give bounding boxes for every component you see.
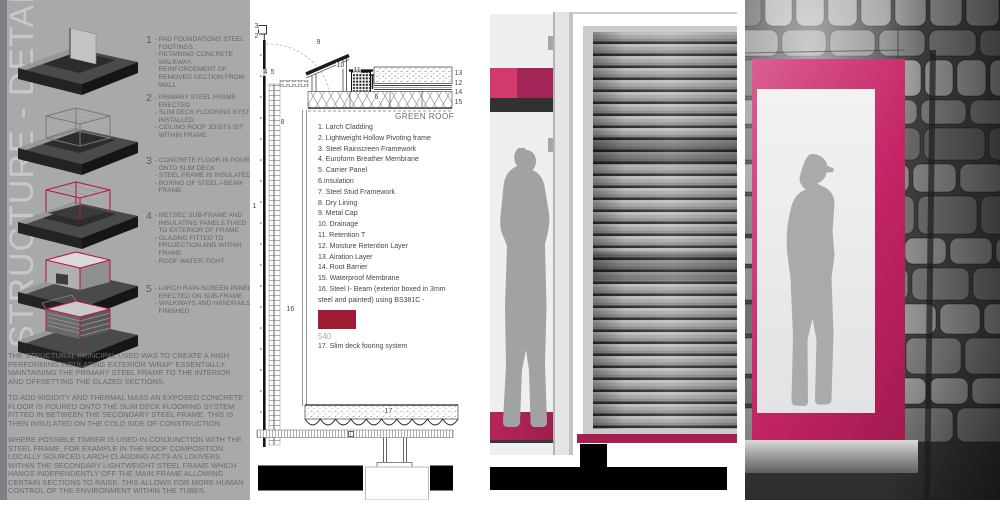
step-annotation-2: 2 - PRIMARY STEEL FRAME ERECTED - SLIM D… [146,94,248,140]
concrete-pier [366,467,429,500]
legend-item: 2. Lightweight Hollow Pivoting frame [318,134,454,145]
step-text: - PAD FOUNDATIONS STEEL FOOTINGS. - RETA… [155,36,244,89]
step-number: 2 [146,94,152,140]
dry-lining [303,110,307,406]
step-annotation-3: 3 - CONCRETE FLOOR IS POURED ONTO SLIM D… [146,157,248,195]
green-roof-substrate [374,67,452,84]
callout-label: 4 [263,69,268,76]
bracket-tab [548,36,553,50]
step-number: 3 [146,157,152,195]
detail-drawing-panel: GREEN ROOF 1. Larch Cladding2. Lightweig… [250,0,487,500]
callout-label: 16 [286,306,295,313]
legend-item: 7. Steel Stud Framework [318,188,454,199]
axon-step-1-image [12,20,144,96]
legend-item: 15. Waterproof Membrane [318,274,454,285]
crimson-panel-edge [577,434,737,443]
steel-columns [384,438,407,462]
callout-label: 8 [280,119,285,126]
legend-item: 14. Root Barrier [318,263,454,274]
callout-label: 14 [454,89,463,96]
callout-label: 13 [454,70,463,77]
timber-louver-panel [583,26,737,443]
pad-foundation-right [430,466,453,491]
pad-foundation-left [258,466,363,491]
step-text: - CONCRETE FLOOR IS POURED ONTO SLIM DEC… [155,157,259,195]
legend-item: 3. Steel Rainscreen Framework [318,145,454,156]
callout-label: 5 [270,69,275,76]
stone-wall-panel [745,0,1000,500]
slim-deck-profile [305,419,458,425]
legend-item: 1. Larch Cladding [318,123,454,134]
larch-planks [593,32,737,429]
roof-insulation [308,92,452,108]
black-base-band [490,467,727,490]
intro-paragraph: THE STRUCTURAL PRINCIPAL USED WAS TO CRE… [8,352,248,386]
legend-item: 16. Steel I- Beam (exterior boxed in 3mm… [318,285,454,307]
person-silhouette [775,151,847,409]
step-annotation-1: 1 - PAD FOUNDATIONS STEEL FOOTINGS. - RE… [146,36,248,89]
display-panel [757,89,875,413]
legend-item: 11. Retention T [318,231,454,242]
green-roof-legend: GREEN ROOF 1. Larch Cladding2. Lightweig… [318,110,454,352]
wall-panel [70,28,96,64]
metal-cap [259,26,267,35]
callout-label: 2 [254,33,259,40]
legend-item: 9. Metal Cap [318,209,454,220]
callout-label: 12 [454,80,463,87]
crimson-band [490,68,556,98]
callout-label: 10 [336,62,345,69]
callout-label: 1 [252,203,257,210]
step-text: - LARCH RAIN-SCREEN PANELS ERECTED ON SU… [155,285,256,315]
legend-item: 12. Moisture Retention Layer [318,242,454,253]
callout-label: 17 [384,408,393,415]
legend-header: GREEN ROOF [318,110,454,123]
swatch-code: 540 [318,331,454,342]
fixing-dots [260,54,262,434]
intro-paragraph: WHERE POSSIBLE TIMBER IS USED IN CONJUNC… [8,436,248,496]
axon-step-2-image [12,100,144,176]
legend-item: 13. Airation Layer [318,253,454,264]
legend-items: 1. Larch Cladding2. Lightweight Hollow P… [318,123,454,307]
legend-item: 4. Euroform Breather Membrane [318,155,454,166]
magenta-frame [752,59,905,440]
callout-label: 3 [254,23,259,30]
stud-insulation-wall [269,84,280,445]
step-annotation-5: 5 - LARCH RAIN-SCREEN PANELS ERECTED ON … [146,285,248,315]
step-number: 1 [146,36,152,89]
concrete-ledge [745,440,918,473]
roof-layers [374,86,452,90]
step-annotation-4: 4 - METSEC SUB-FRAME AND INSULATING PANE… [146,212,248,265]
step-number: 4 [146,212,152,265]
bracket-tab [548,138,553,152]
ceiling-lining-strip [257,430,453,438]
cladding-render-panel [487,0,737,500]
step-number: 5 [146,285,152,315]
intro-paragraph: TO ADD RIGIDITY AND THERMAL MASS AN EXPO… [8,394,248,428]
dark-band [490,98,560,112]
black-column-stub [580,444,607,468]
axon-step-3-image [12,174,144,250]
left-panel: STRUCTURE - DETAIL [0,0,250,500]
legend-item: 17. Slim deck fooring system [318,342,454,353]
crimson-color-swatch [318,310,356,329]
callout-label: 15 [454,99,463,106]
callout-label: 9 [316,39,321,46]
person-silhouette [499,148,557,446]
intro-paragraphs: THE STRUCTURAL PRINCIPAL USED WAS TO CRE… [8,352,248,504]
legend-item: 5. Carrier Panel [318,166,454,177]
panel-top-edge [573,12,737,14]
concrete-column [553,12,573,455]
legend-item: 6.Insulation [318,177,454,188]
top-plate [280,81,308,87]
legend-item: 10. Drainage [318,220,454,231]
callout-label: 11 [353,67,361,74]
callout-label: 6 [374,94,379,101]
step-text: - METSEC SUB-FRAME AND INSULATING PANELS… [155,212,246,265]
step-text: - PRIMARY STEEL FRAME ERECTED - SLIM DEC… [155,94,260,140]
larch-cladding-line [263,40,266,447]
legend-item: 8. Dry Lining [318,199,454,210]
